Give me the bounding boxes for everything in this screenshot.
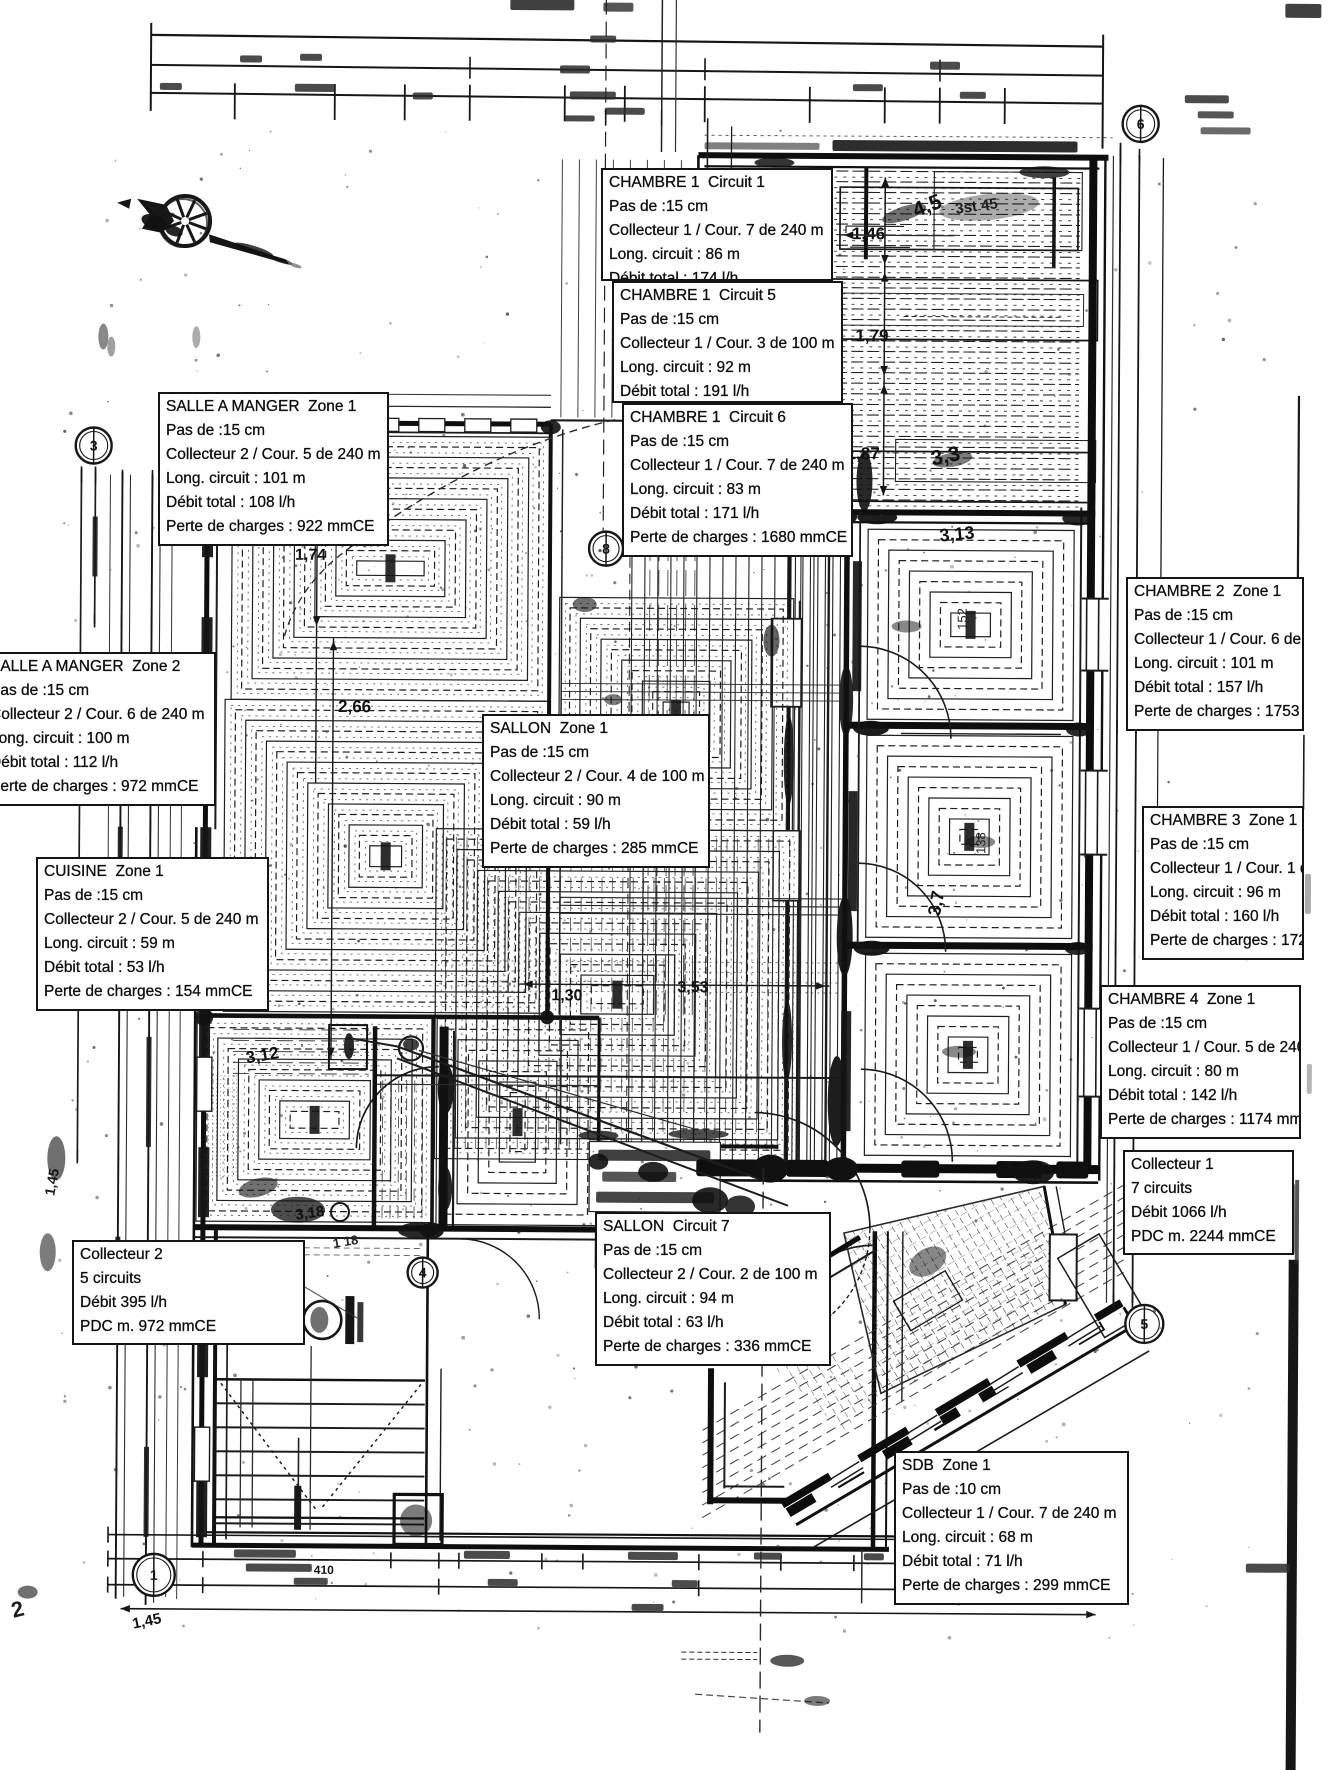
svg-text:1,30: 1,30 [551, 987, 582, 1004]
svg-text:1,46: 1,46 [852, 224, 885, 243]
svg-text:1,79: 1,79 [855, 326, 888, 345]
svg-text:8: 8 [602, 541, 610, 557]
svg-text:1,74: 1,74 [295, 547, 326, 564]
svg-text:3,53: 3,53 [677, 979, 708, 996]
svg-text:3: 3 [90, 437, 98, 453]
svg-text:138: 138 [973, 832, 988, 854]
svg-text:152: 152 [955, 608, 970, 630]
svg-text:3,13: 3,13 [939, 522, 976, 545]
svg-text:410: 410 [314, 1563, 334, 1577]
svg-text:4: 4 [419, 1264, 427, 1280]
svg-text:6: 6 [1137, 116, 1145, 132]
svg-text:1: 1 [150, 1567, 158, 1583]
svg-text:2,66: 2,66 [338, 697, 371, 716]
svg-text:5: 5 [1140, 1316, 1148, 1332]
